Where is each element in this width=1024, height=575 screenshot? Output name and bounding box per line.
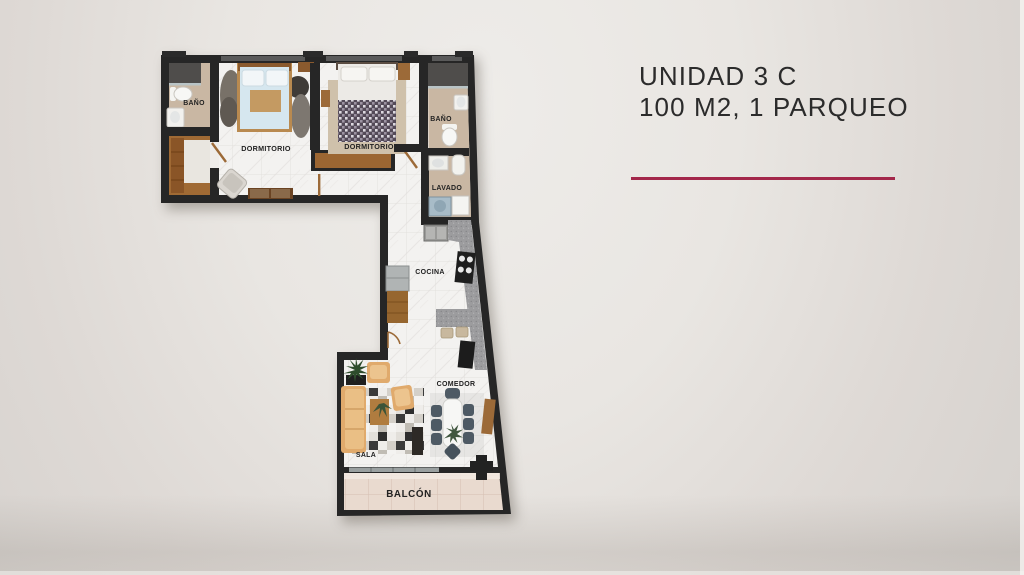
svg-text:DORMITORIO: DORMITORIO (241, 144, 291, 153)
svg-text:DORMITORIO: DORMITORIO (344, 142, 394, 151)
svg-text:COCINA: COCINA (415, 269, 444, 276)
svg-text:BAÑO: BAÑO (430, 114, 452, 123)
svg-text:BAÑO: BAÑO (183, 98, 205, 107)
svg-text:BALCÓN: BALCÓN (386, 488, 432, 500)
svg-text:COMEDOR: COMEDOR (437, 381, 476, 388)
svg-text:100 M2, 1 PARQUEO: 100 M2, 1 PARQUEO (639, 92, 909, 122)
svg-text:SALA: SALA (356, 452, 376, 459)
svg-text:LAVADO: LAVADO (432, 185, 463, 192)
svg-text:UNIDAD 3 C: UNIDAD 3 C (639, 61, 797, 91)
